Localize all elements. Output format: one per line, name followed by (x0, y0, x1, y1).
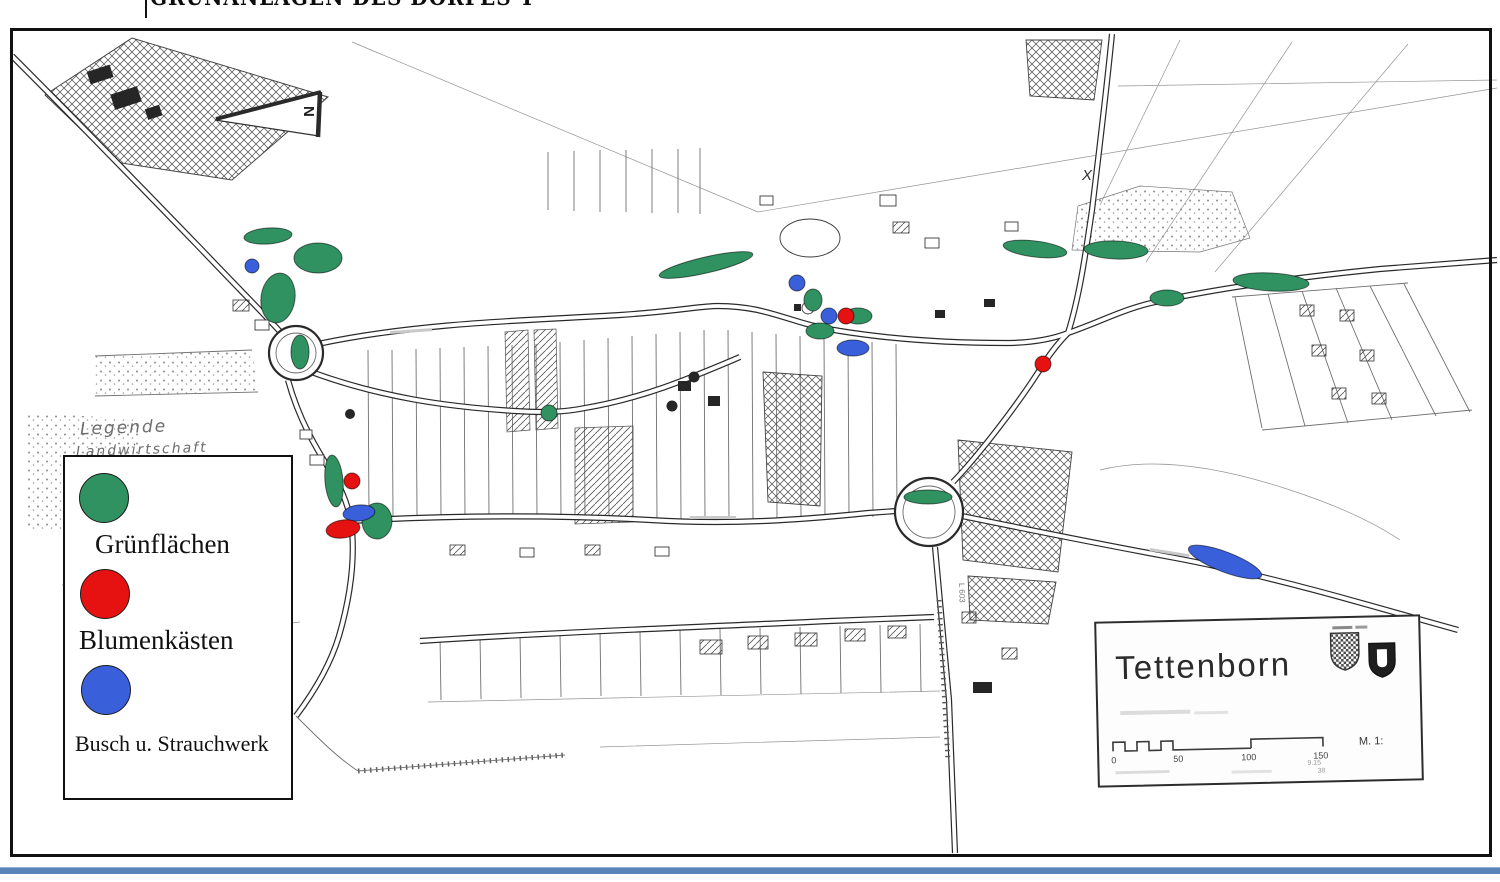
place-name: Tettenborn (1115, 645, 1292, 687)
scale-bar: 0 50 100 150 M. 1: 9.15 38 (1111, 726, 1424, 781)
marker-red (344, 473, 360, 489)
scanned-map-page: GRÜNANLAGEN DES DORFES TETTENBORN (0, 0, 1500, 882)
marker-green (323, 454, 345, 507)
building (794, 304, 801, 311)
busch-strauchwerk-swatch (81, 665, 131, 715)
marker-blue (789, 275, 805, 291)
marker-green (244, 226, 293, 245)
fine-print-2: 38 (1318, 768, 1326, 775)
fine-print-1: 9.15 (1307, 760, 1321, 767)
marker-green (804, 289, 822, 311)
marker-red (838, 308, 854, 324)
marker-blue (245, 259, 259, 273)
coat-of-arms-icon (1320, 623, 1413, 691)
embankments (296, 600, 948, 771)
marker-green (1233, 271, 1310, 293)
blumenkaesten-label: Blumenkästen (79, 625, 233, 656)
marker-green (294, 243, 342, 273)
gruenflaechen-swatch (79, 473, 129, 523)
marker-blue (821, 308, 837, 324)
marker-green (541, 405, 557, 421)
marker-green (904, 490, 952, 504)
marker-red (1035, 356, 1051, 372)
road-label-l603: L 603 (957, 583, 967, 604)
gruenflaechen-label: Grünflächen (95, 529, 230, 560)
marker-blue (837, 340, 869, 356)
blumenkaesten-swatch (80, 569, 130, 619)
bottom-blue-rule (0, 867, 1500, 874)
marker-green (806, 323, 834, 339)
legende-handwritten-note: Legende (80, 416, 168, 439)
field-mark-x: X (1081, 167, 1093, 184)
marker-green (291, 335, 309, 369)
north-letter: N (300, 106, 317, 117)
legend-box: Grünflächen Blumenkästen Busch u. Strauc… (63, 455, 293, 800)
map-title-box: Tettenborn 0 50 100 150 M. 1: 9.15 38 (1094, 614, 1424, 787)
pond-circle (780, 219, 840, 257)
busch-strauchwerk-label: Busch u. Strauchwerk (75, 731, 269, 757)
marker-green (657, 246, 754, 283)
faded-subtitle-smudge (1194, 711, 1228, 715)
marker-green (1002, 237, 1067, 261)
scale-tick-0: 0 (1111, 755, 1116, 765)
scale-tick-50: 50 (1173, 754, 1183, 764)
faded-subtitle-smudge (1120, 710, 1190, 716)
marker-green (1150, 290, 1184, 306)
checkered-shield-icon (1330, 633, 1359, 671)
scale-prefix: M. 1: (1359, 735, 1384, 748)
scale-tick-100: 100 (1241, 752, 1256, 762)
